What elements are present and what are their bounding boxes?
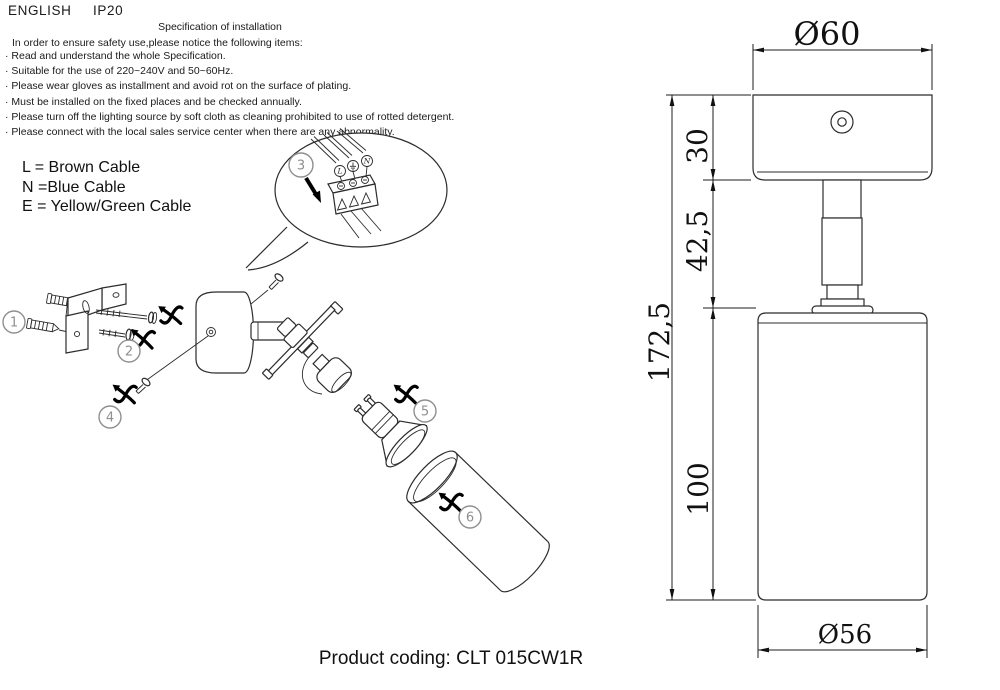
outgoing-wires	[341, 208, 381, 238]
terminal-block	[328, 167, 378, 215]
screw-twist-icon	[113, 381, 139, 405]
fixing-screw-leader	[144, 336, 208, 382]
dim-stem-height: 42,5	[681, 210, 714, 272]
canopy-screw	[251, 272, 284, 304]
spec-item: · Read and understand the whole Specific…	[5, 49, 454, 64]
step-marker-6: 6	[459, 506, 481, 528]
wall-anchors	[26, 293, 112, 333]
cable-legend-line-n: N =Blue Cable	[22, 178, 191, 198]
step-marker-3: 3	[289, 153, 313, 177]
terminal-markers: L N	[335, 156, 373, 177]
dim-canopy-height: 30	[681, 128, 714, 164]
swivel-fork	[262, 300, 343, 383]
canopy-exploded	[196, 292, 254, 373]
callout-tail	[248, 242, 308, 270]
canopy-screw-hole	[831, 111, 853, 133]
holder-cable-loop	[302, 356, 322, 394]
step-marker-2: 2	[118, 340, 140, 362]
dimension-labels: Ø60 30 42,5 172,5 100 Ø56	[643, 15, 872, 650]
exploded-assembly: 1	[3, 272, 556, 598]
cable-legend: L = Brown Cable N =Blue Cable E = Yellow…	[22, 158, 191, 217]
language-label: ENGLISH	[8, 3, 71, 18]
cable-legend-line-l: L = Brown Cable	[22, 158, 191, 178]
product-coding: Product coding: CLT 015CW1R	[251, 648, 651, 670]
installation-spec-page: ENGLISH IP20 Specification of installati…	[0, 0, 1000, 690]
dimension-lines	[666, 44, 932, 658]
screw-twist-icon	[158, 302, 184, 327]
lamp-holder	[307, 348, 356, 396]
stem-upper	[823, 180, 861, 218]
body-outline	[758, 313, 927, 600]
spec-title: Specification of installation	[10, 21, 430, 33]
spec-item: · Please connect with the local sales se…	[5, 125, 454, 140]
step-marker-1: 1	[3, 311, 25, 333]
stem-neck	[827, 285, 858, 299]
pivot-joint	[275, 315, 321, 361]
step-1-label: 1	[10, 316, 18, 331]
fixing-screw	[136, 377, 151, 394]
dimension-drawing: Ø60 30 42,5 172,5 100 Ø56	[643, 15, 932, 658]
spec-item: · Please wear gloves as installment and …	[5, 79, 454, 94]
screw-twist-icon	[394, 381, 420, 405]
stem-disc	[812, 306, 873, 314]
fixture-outline	[753, 95, 932, 600]
dim-total-height: 172,5	[643, 302, 676, 382]
mounting-screws	[96, 309, 157, 341]
step-marker-4: 4	[99, 406, 121, 428]
spec-item: · Please turn off the lighting source by…	[5, 110, 454, 125]
stem-flange	[821, 299, 864, 307]
mounting-bracket	[66, 284, 126, 353]
wiring-arrow-icon	[306, 178, 321, 203]
swivel-arm	[251, 322, 295, 340]
screw-twist-icon	[439, 489, 465, 513]
step-3-label: 3	[297, 159, 305, 174]
ip-rating-label: IP20	[93, 3, 123, 18]
step-5-label: 5	[421, 405, 429, 420]
callout-tail	[246, 227, 287, 268]
spec-item: · Suitable for the use of 220~240V and 5…	[5, 64, 454, 79]
step-marker-5: 5	[414, 400, 436, 422]
terminal-l-label: L	[337, 167, 343, 176]
canopy-outline	[753, 95, 932, 180]
screw-twist-icon	[131, 327, 156, 350]
dim-body-height: 100	[682, 462, 715, 515]
wiring-detail-callout: L N	[246, 129, 447, 271]
cable-legend-line-e: E = Yellow/Green Cable	[22, 197, 191, 217]
gu10-bulb	[342, 382, 433, 472]
step-4-label: 4	[106, 411, 114, 426]
terminal-n-label: N	[363, 157, 371, 166]
step-2-label: 2	[125, 345, 133, 360]
dim-top-diameter: Ø60	[794, 15, 861, 53]
earth-icon	[350, 163, 356, 170]
shade-tube	[400, 444, 557, 599]
step-6-label: 6	[466, 511, 474, 526]
stem-lower	[822, 218, 862, 285]
spec-intro: In order to ensure safety use,please not…	[12, 37, 303, 49]
spec-item: · Must be installed on the fixed places …	[5, 95, 454, 110]
callout-balloon	[275, 133, 447, 247]
spec-items-list: · Read and understand the whole Specific…	[5, 49, 454, 140]
dim-body-diameter: Ø56	[818, 620, 872, 650]
